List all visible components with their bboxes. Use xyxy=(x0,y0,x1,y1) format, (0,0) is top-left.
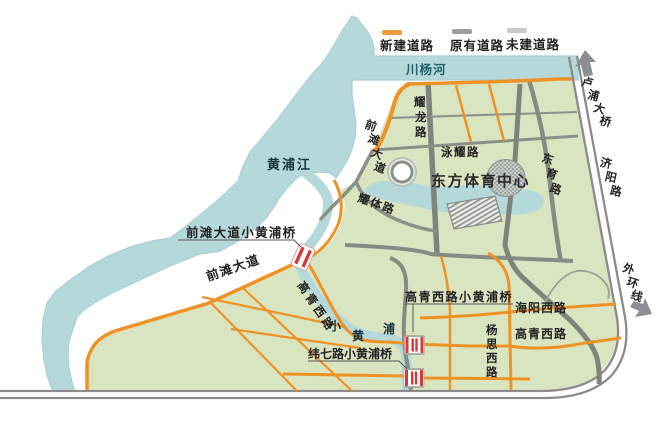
svg-text:小: 小 xyxy=(329,318,341,333)
svg-text:龙: 龙 xyxy=(414,110,427,124)
svg-text:黄: 黄 xyxy=(352,328,364,343)
svg-text:东方体育中心: 东方体育中心 xyxy=(431,172,530,190)
svg-text:海阳西路: 海阳西路 xyxy=(515,300,567,315)
svg-text:耀: 耀 xyxy=(414,95,426,109)
svg-text:原有道路: 原有道路 xyxy=(450,38,504,53)
svg-text:川杨河: 川杨河 xyxy=(405,62,447,77)
svg-text:杨: 杨 xyxy=(486,323,498,337)
svg-text:高青西路: 高青西路 xyxy=(515,326,567,341)
svg-text:前滩大道小黄浦桥: 前滩大道小黄浦桥 xyxy=(186,225,296,240)
svg-text:路: 路 xyxy=(486,365,498,379)
svg-text:纬七路小黄浦桥: 纬七路小黄浦桥 xyxy=(308,346,393,361)
svg-text:高青西路小黄浦桥: 高青西路小黄浦桥 xyxy=(405,289,513,304)
svg-text:黄浦江: 黄浦江 xyxy=(267,157,312,172)
svg-text:未建道路: 未建道路 xyxy=(505,37,560,52)
svg-text:泳耀路: 泳耀路 xyxy=(441,145,480,159)
svg-text:路: 路 xyxy=(415,125,427,139)
svg-text:西: 西 xyxy=(486,352,498,365)
svg-text:浦: 浦 xyxy=(383,321,395,336)
svg-text:新建道路: 新建道路 xyxy=(380,38,434,53)
svg-text:思: 思 xyxy=(486,338,498,351)
